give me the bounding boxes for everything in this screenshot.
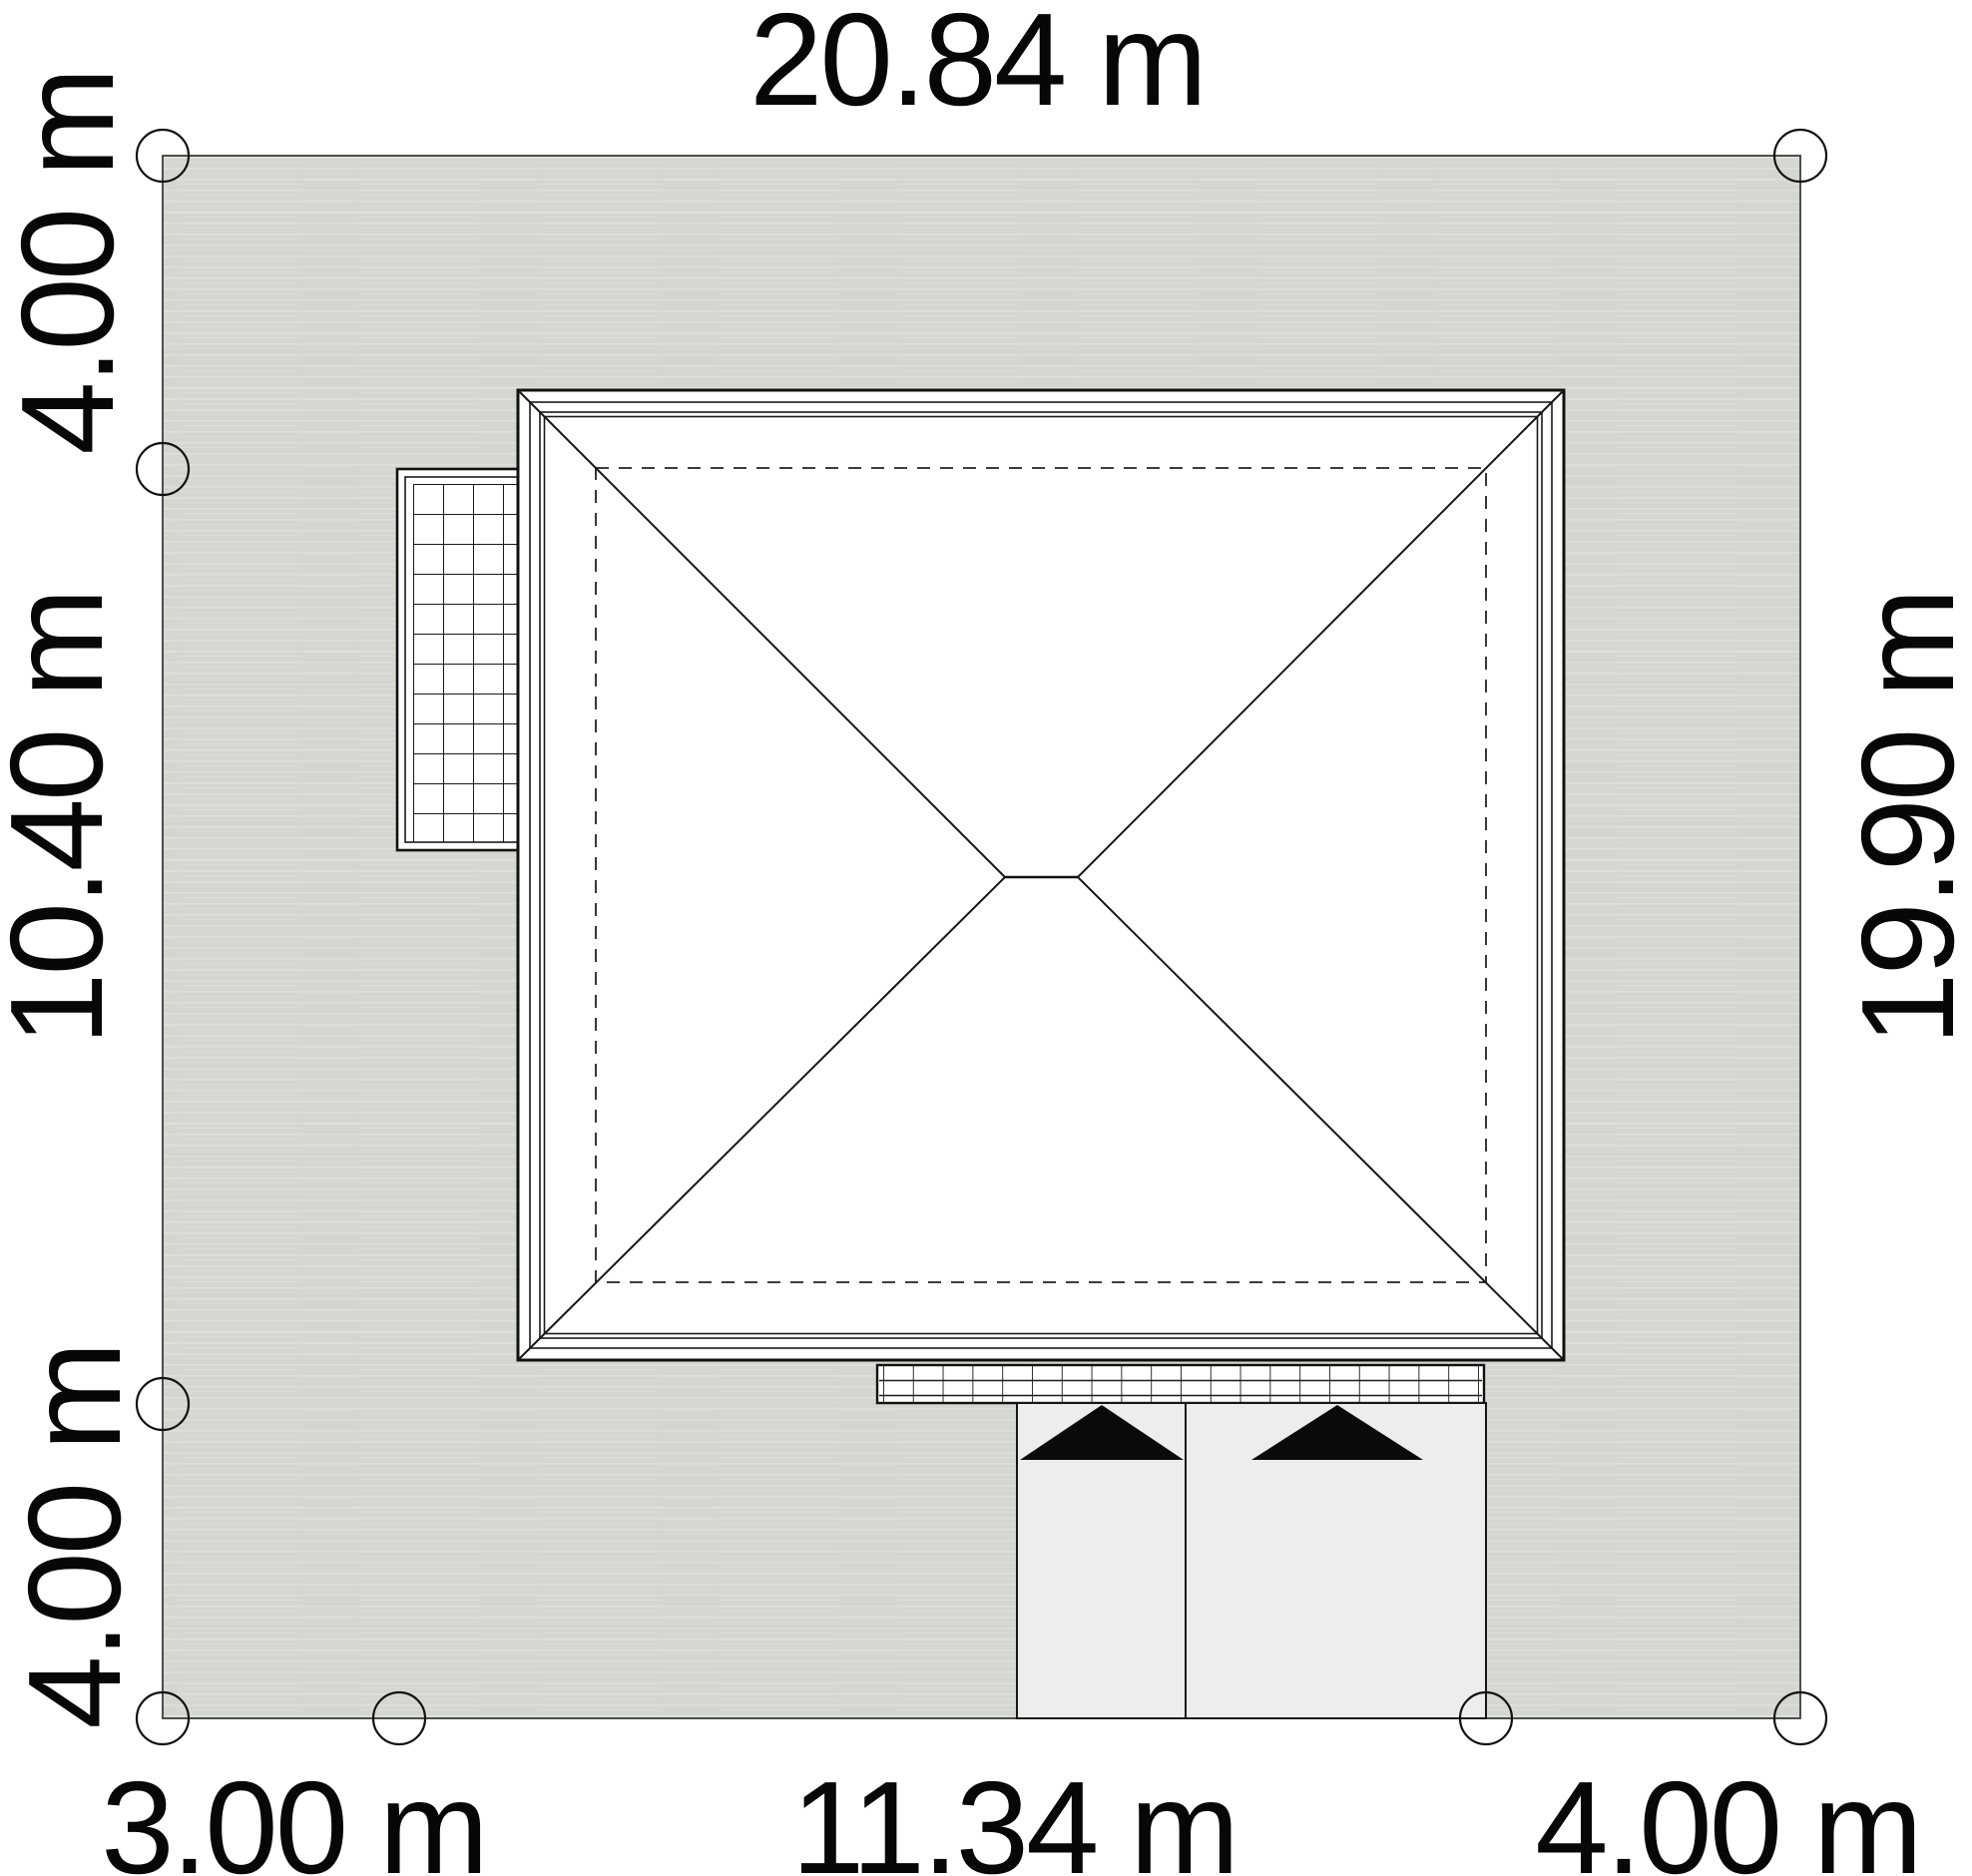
dim-left-top: 4.00 m: [0, 70, 141, 455]
site-plan-page: 20.84 m 4.00 m 10.40 m 4.00 m 19.90 m 3.…: [0, 0, 1972, 1876]
dim-top-width: 20.84 m: [749, 0, 1205, 133]
dim-left-bottom: 4.00 m: [1, 1344, 148, 1729]
dim-left-middle: 10.40 m: [0, 591, 130, 1046]
house-roof: [518, 390, 1564, 1360]
walkway-strip: [877, 1365, 1484, 1403]
walkway-grid: [883, 1366, 1479, 1402]
dim-bottom-middle: 11.34 m: [791, 1754, 1236, 1876]
roof-eaves-outer: [518, 390, 1564, 1360]
site-plan-drawing: 20.84 m 4.00 m 10.40 m 4.00 m 19.90 m 3.…: [0, 0, 1972, 1876]
driveway: [1017, 1403, 1486, 1718]
dim-bottom-right: 4.00 m: [1535, 1754, 1920, 1876]
dim-bottom-left: 3.00 m: [101, 1754, 486, 1876]
dim-right-depth: 19.90 m: [1834, 591, 1972, 1046]
